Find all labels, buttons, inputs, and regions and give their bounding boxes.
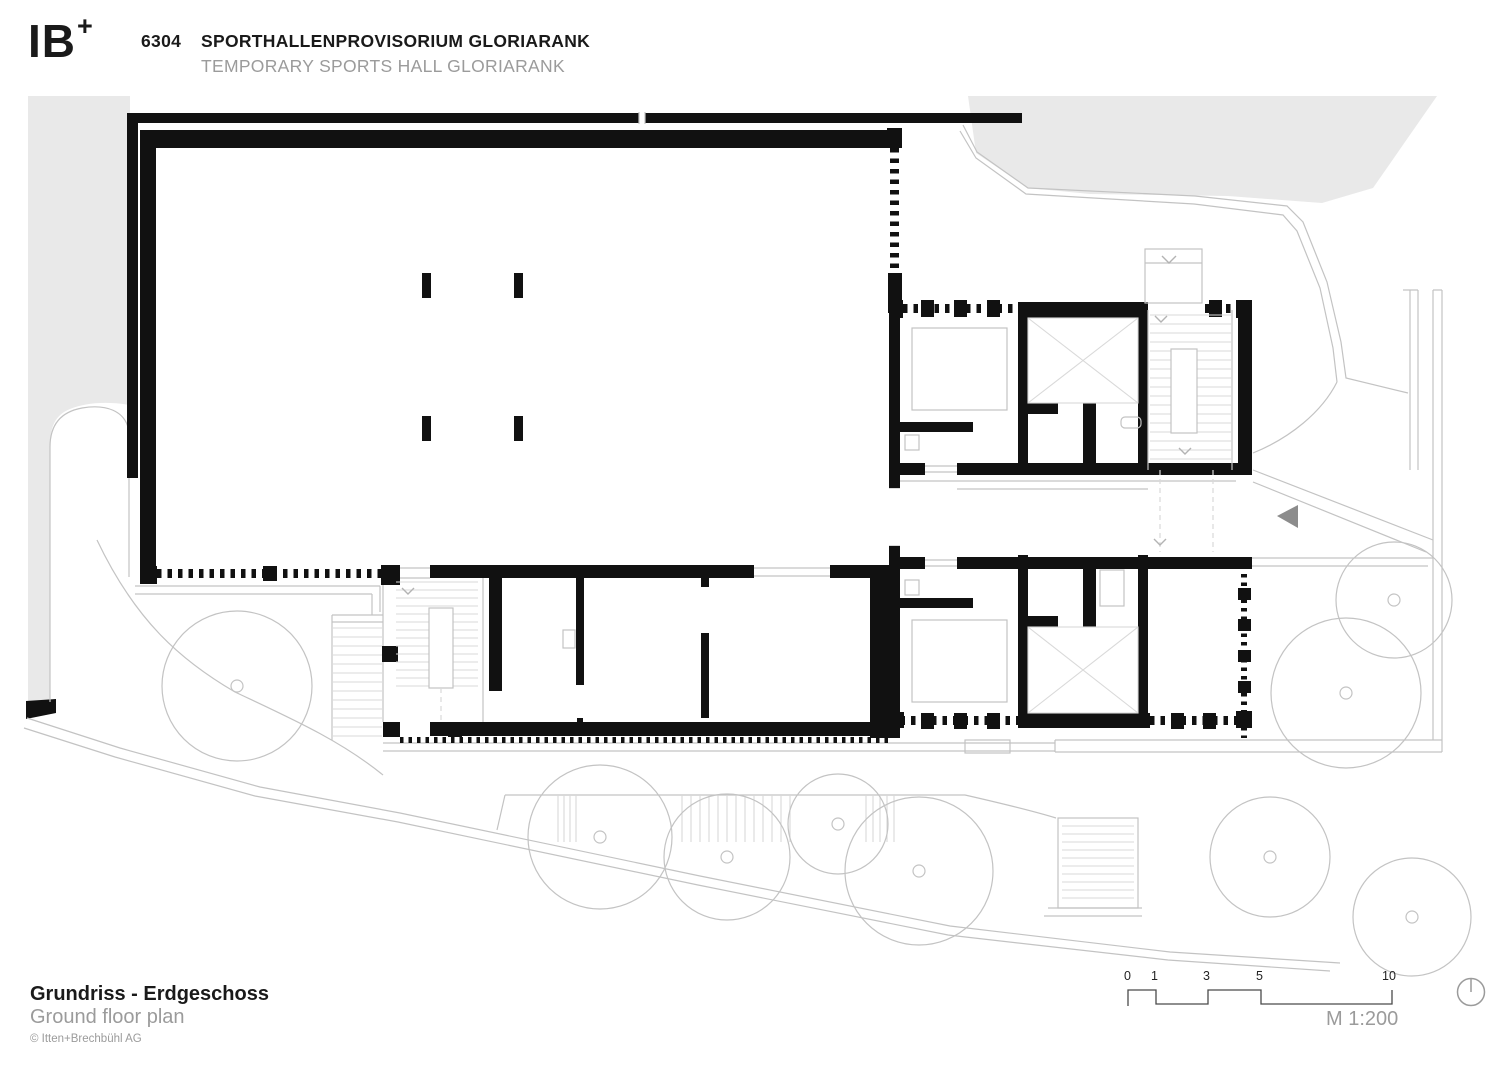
tree — [1336, 542, 1452, 658]
stair-west-exterior — [333, 628, 382, 736]
drawing-title-de: Grundriss - Erdgeschoss — [30, 983, 269, 1006]
scale-label-10: 10 — [1382, 969, 1396, 983]
project-title-en: TEMPORARY SPORTS HALL GLORIARANK — [201, 56, 590, 77]
tree — [845, 797, 993, 945]
project-title-de: SPORTHALLENPROVISORIUM GLORIARANK — [201, 31, 590, 52]
shaft-upper — [1028, 318, 1138, 403]
scale-label-5: 5 — [1256, 969, 1263, 983]
scale-label-1: 1 — [1151, 969, 1158, 983]
project-number: 6304 — [141, 31, 199, 52]
stair-east — [1145, 249, 1232, 552]
scale-label-3: 3 — [1203, 969, 1210, 983]
scale-ratio: M 1:200 — [1326, 1008, 1398, 1031]
sheet-title-block: 6304 SPORTHALLENPROVISORIUM GLORIARANK T… — [141, 31, 590, 77]
logo-plus-icon: + — [77, 11, 93, 41]
drawing-title-en: Ground floor plan — [30, 1006, 185, 1029]
tree — [1271, 618, 1421, 768]
floor-plan-drawing — [0, 0, 1512, 1073]
roof-canopy-edge — [127, 113, 1022, 123]
trees — [162, 542, 1471, 976]
apron-lines — [135, 466, 1236, 751]
south-slope-paths — [24, 718, 1340, 971]
site-terrain — [26, 96, 1437, 775]
copyright-note: © Itten+Brechbühl AG — [30, 1033, 142, 1045]
tree — [162, 611, 312, 761]
tree — [1210, 797, 1330, 917]
scale-bar-line — [1128, 990, 1392, 1006]
south-strip — [382, 565, 890, 740]
north-circle-icon — [1458, 979, 1485, 1006]
shaft-lower — [1028, 627, 1138, 713]
tree — [528, 765, 672, 909]
southeast-site-stair — [1044, 818, 1142, 916]
scale-label-0: 0 — [1124, 969, 1131, 983]
company-logo: IB+ — [28, 18, 92, 64]
stair-west-interior — [396, 582, 478, 720]
floor-plan-sheet: { "header": { "logo_text": "IB", "logo_p… — [0, 0, 1512, 1073]
triangle-left-icon — [1277, 505, 1298, 528]
hall-columns — [422, 273, 523, 441]
tree — [1353, 858, 1471, 976]
logo-text: IB — [28, 15, 76, 67]
